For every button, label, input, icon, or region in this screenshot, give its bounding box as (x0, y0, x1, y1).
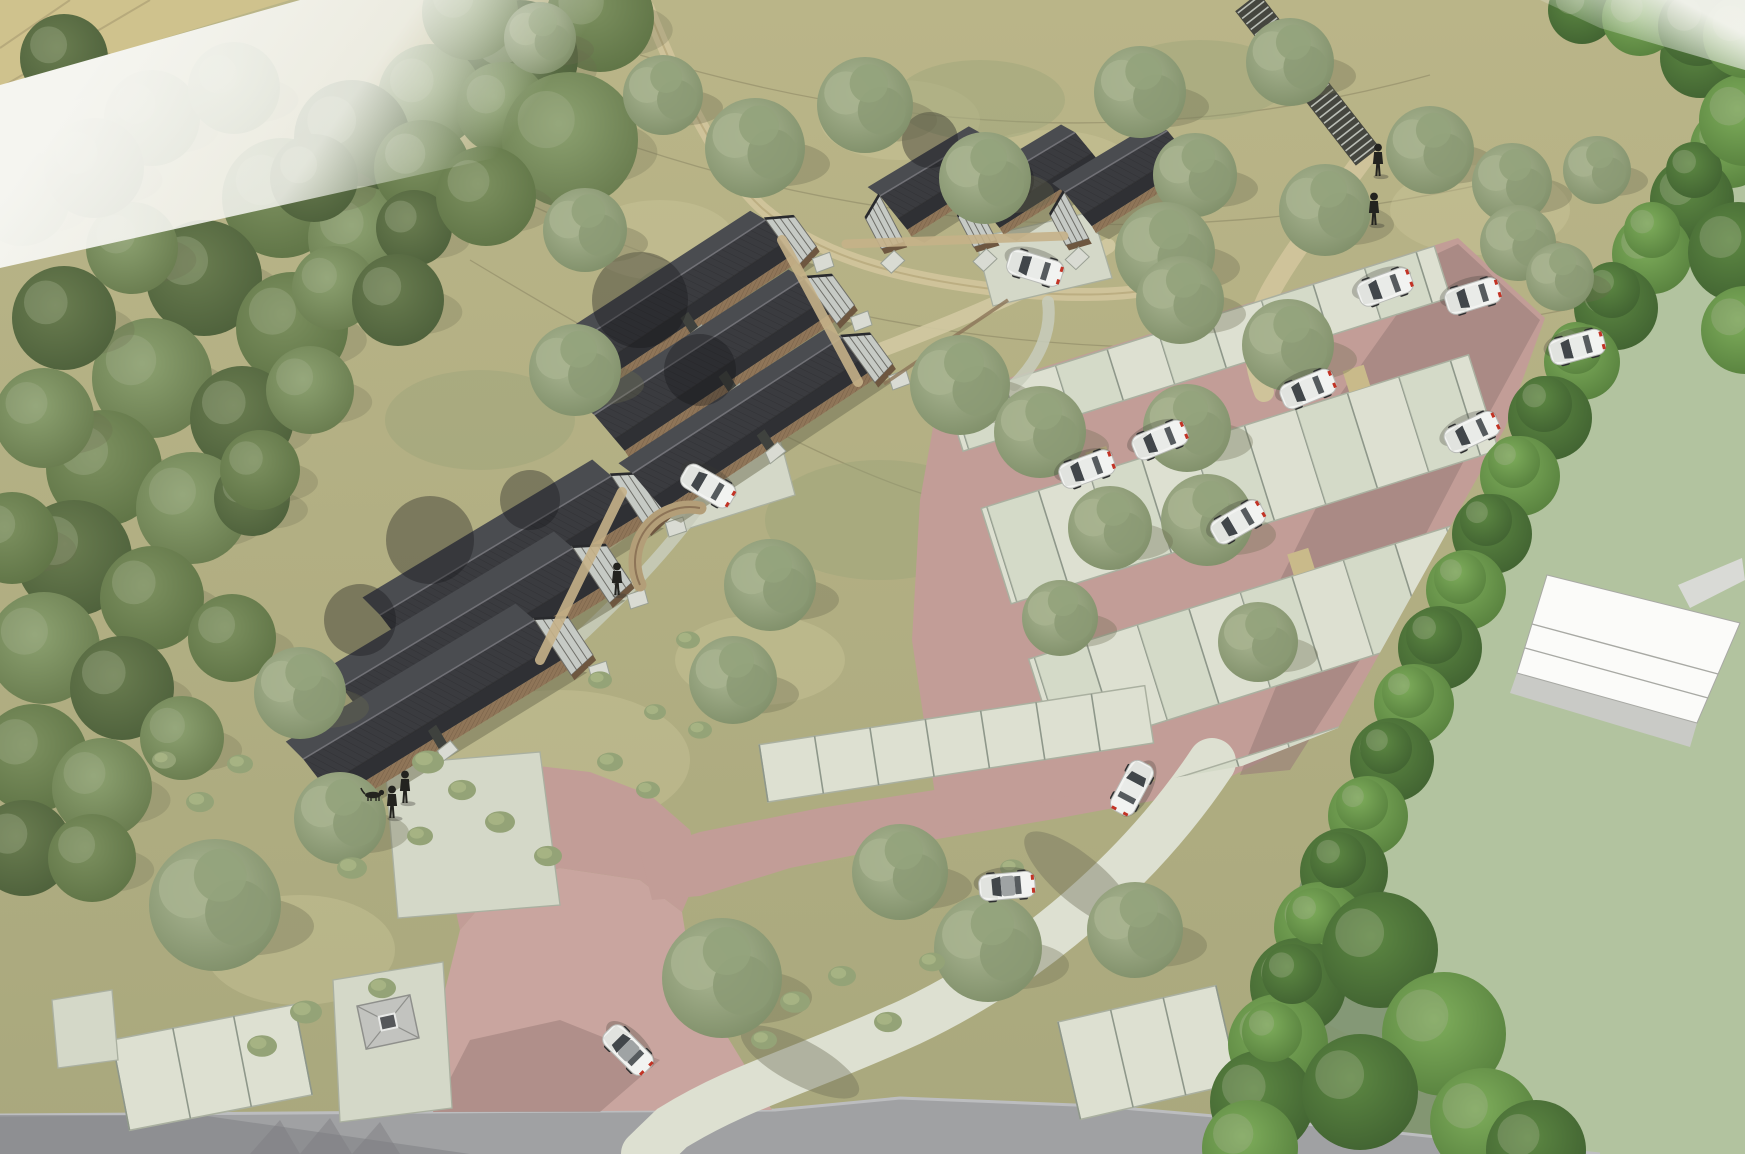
canopy-lobe (1125, 53, 1162, 90)
hedge-tree-highlight (1412, 616, 1436, 640)
shrub-highlight (293, 1002, 311, 1015)
shrub-highlight (451, 782, 466, 793)
forest-tree-highlight (6, 382, 48, 424)
forest-tree-highlight (64, 752, 106, 794)
canopy-lobe (572, 194, 606, 228)
canopy-lobe (1166, 263, 1201, 298)
canopy-lobe (1586, 141, 1613, 168)
dog-head (379, 790, 384, 795)
canopy-lobe (1506, 211, 1536, 241)
hedge-tree-highlight (1292, 896, 1316, 920)
canopy-lobe (1499, 149, 1531, 181)
hedge-tree-highlight (1466, 501, 1488, 523)
shrub-highlight (590, 673, 603, 683)
shrub-highlight (754, 1032, 768, 1042)
canopy-lobe (719, 643, 754, 678)
hedge-tree (1488, 436, 1540, 488)
canopy-lobe (1025, 393, 1062, 430)
car-taillight (1032, 888, 1035, 893)
hedge-tree-highlight (1442, 1083, 1487, 1128)
hedge-tree (1382, 666, 1434, 718)
site-plan-3d-view (0, 0, 1745, 1154)
canopy-lobe (850, 64, 888, 102)
hedge-tree-highlight (1315, 1050, 1364, 1099)
person-head (1370, 193, 1378, 201)
canopy-lobe (971, 902, 1014, 945)
hedge-tree (1336, 778, 1388, 830)
forest-tree-highlight (302, 258, 337, 293)
shrub-highlight (250, 1037, 267, 1049)
hedge-tree (1624, 202, 1680, 258)
hedge-tree-highlight (1630, 210, 1654, 234)
shrub-highlight (340, 859, 357, 871)
hedge-tree (1310, 832, 1366, 888)
forest-tree (140, 696, 224, 780)
person-head (388, 786, 396, 794)
shrub-highlight (189, 794, 204, 805)
forest-tree-highlight (198, 606, 235, 643)
canopy-lobe (755, 546, 792, 583)
forest-tree-highlight (24, 281, 68, 325)
hedge-tree-highlight (1249, 1010, 1274, 1035)
canopy-lobe (944, 343, 984, 383)
tree-shade-on-roof (386, 496, 474, 584)
canopy-lobe (970, 139, 1007, 176)
tree-shade-on-roof (664, 334, 736, 406)
person-head (1374, 144, 1382, 152)
canopy-lobe (739, 106, 779, 146)
shrub-highlight (371, 980, 386, 991)
shrub-highlight (537, 848, 552, 859)
canopy-lobe (325, 779, 362, 816)
hedge-tree-highlight (1522, 384, 1546, 408)
forest-tree (48, 814, 136, 902)
canopy-lobe (1310, 171, 1347, 208)
shrub-highlight (230, 756, 244, 766)
forest-tree-highlight (1, 608, 48, 655)
forest-tree-highlight (58, 826, 95, 863)
hedge-tree-highlight (1494, 443, 1516, 465)
forest-tree-highlight (30, 26, 67, 63)
hedge-tree (1262, 944, 1322, 1004)
hedge-tree (1242, 1002, 1302, 1062)
shrub-highlight (831, 968, 846, 979)
forest-tree-highlight (363, 267, 402, 306)
car-taillight (1031, 875, 1034, 880)
person-head (401, 771, 409, 779)
shrub-highlight (410, 828, 424, 838)
forest-tree (12, 266, 116, 370)
forest-tree-highlight (112, 561, 156, 605)
tree-shade-on-roof (592, 252, 688, 348)
canopy-lobe (703, 927, 751, 975)
car-roof (1000, 875, 1016, 896)
hedge-tree-highlight (1388, 673, 1410, 695)
person-head (613, 563, 621, 571)
canopy-lobe (1245, 608, 1277, 640)
shrub-highlight (638, 783, 651, 793)
shrub-highlight (415, 752, 433, 765)
forest-tree-highlight (249, 288, 296, 335)
forest-tree-highlight (276, 358, 313, 395)
hedge-tree (1302, 1034, 1418, 1150)
hedge-tree-highlight (1342, 785, 1364, 807)
forest-tree-highlight (385, 201, 417, 233)
hedge-tree (1460, 494, 1512, 546)
canopy-lobe (1097, 492, 1131, 526)
hut-skylight (379, 1013, 398, 1030)
shrub-highlight (488, 813, 505, 825)
car-windshield (991, 877, 1002, 898)
canopy-lobe (1182, 139, 1216, 173)
canopy-lobe (1276, 25, 1311, 60)
canopy-lobe (885, 831, 923, 869)
hedge-tree (1434, 552, 1486, 604)
shrub-highlight (678, 633, 691, 643)
forest-tree-highlight (150, 708, 185, 743)
tree-shade-on-roof (500, 470, 560, 530)
canopy-lobe (1048, 586, 1078, 616)
hedge-tree-highlight (1440, 559, 1462, 581)
paver-pad (52, 990, 118, 1068)
canopy-lobe (1549, 248, 1576, 275)
tree-shade-on-roof (324, 584, 396, 656)
hedge-tree-highlight (1269, 952, 1294, 977)
hedge-tree (1516, 376, 1572, 432)
forest-tree-highlight (229, 441, 263, 475)
forest-tree-highlight (149, 468, 196, 515)
shrub-highlight (600, 754, 614, 764)
hedge-tree-highlight (1335, 908, 1384, 957)
hedge-tree-highlight (1316, 840, 1340, 864)
canopy-lobe (1120, 889, 1158, 927)
forest-tree (220, 430, 300, 510)
hedge-tree-highlight (1672, 150, 1696, 174)
shrub-highlight (690, 723, 703, 733)
site-aerial-rendering (0, 0, 1745, 1154)
hedge-tree-highlight (1213, 1113, 1253, 1153)
canopy-lobe (194, 849, 247, 902)
hedge-tree-highlight (1700, 216, 1742, 258)
forest-tree (266, 346, 354, 434)
hedge-tree-highlight (1366, 729, 1388, 751)
canopy-lobe (285, 654, 322, 691)
forest-tree (352, 254, 444, 346)
shrub-highlight (922, 954, 936, 964)
hedge-tree (1360, 722, 1412, 774)
canopy-lobe (1149, 210, 1189, 250)
forest-tree-highlight (202, 381, 246, 425)
canopy-lobe (1273, 306, 1310, 343)
hedge-tree-highlight (1396, 989, 1448, 1041)
shrub-highlight (877, 1014, 892, 1025)
forest-tree-highlight (82, 651, 126, 695)
canopy-lobe (1416, 113, 1451, 148)
shrub-highlight (783, 993, 800, 1005)
shrub-highlight (154, 753, 167, 763)
hedge-tree (1406, 608, 1462, 664)
shrub-highlight (646, 705, 658, 714)
canopy-lobe (560, 331, 597, 368)
